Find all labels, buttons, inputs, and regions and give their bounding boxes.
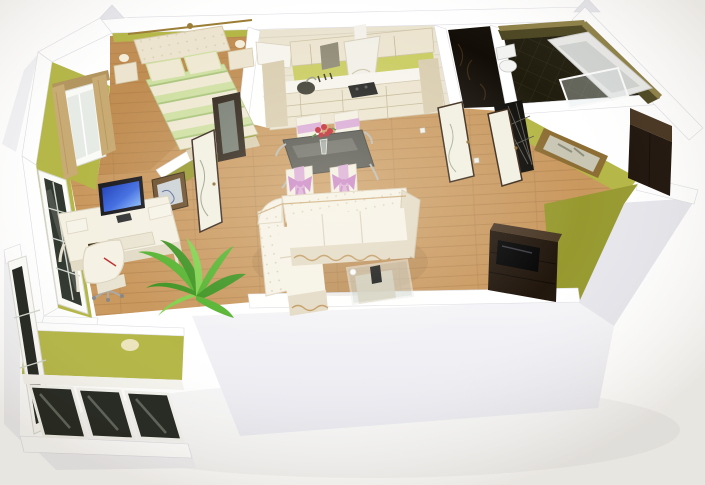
lighting-overlay (0, 0, 705, 485)
apartment-3d-floorplan (0, 0, 705, 485)
floorplan-render (0, 0, 705, 485)
